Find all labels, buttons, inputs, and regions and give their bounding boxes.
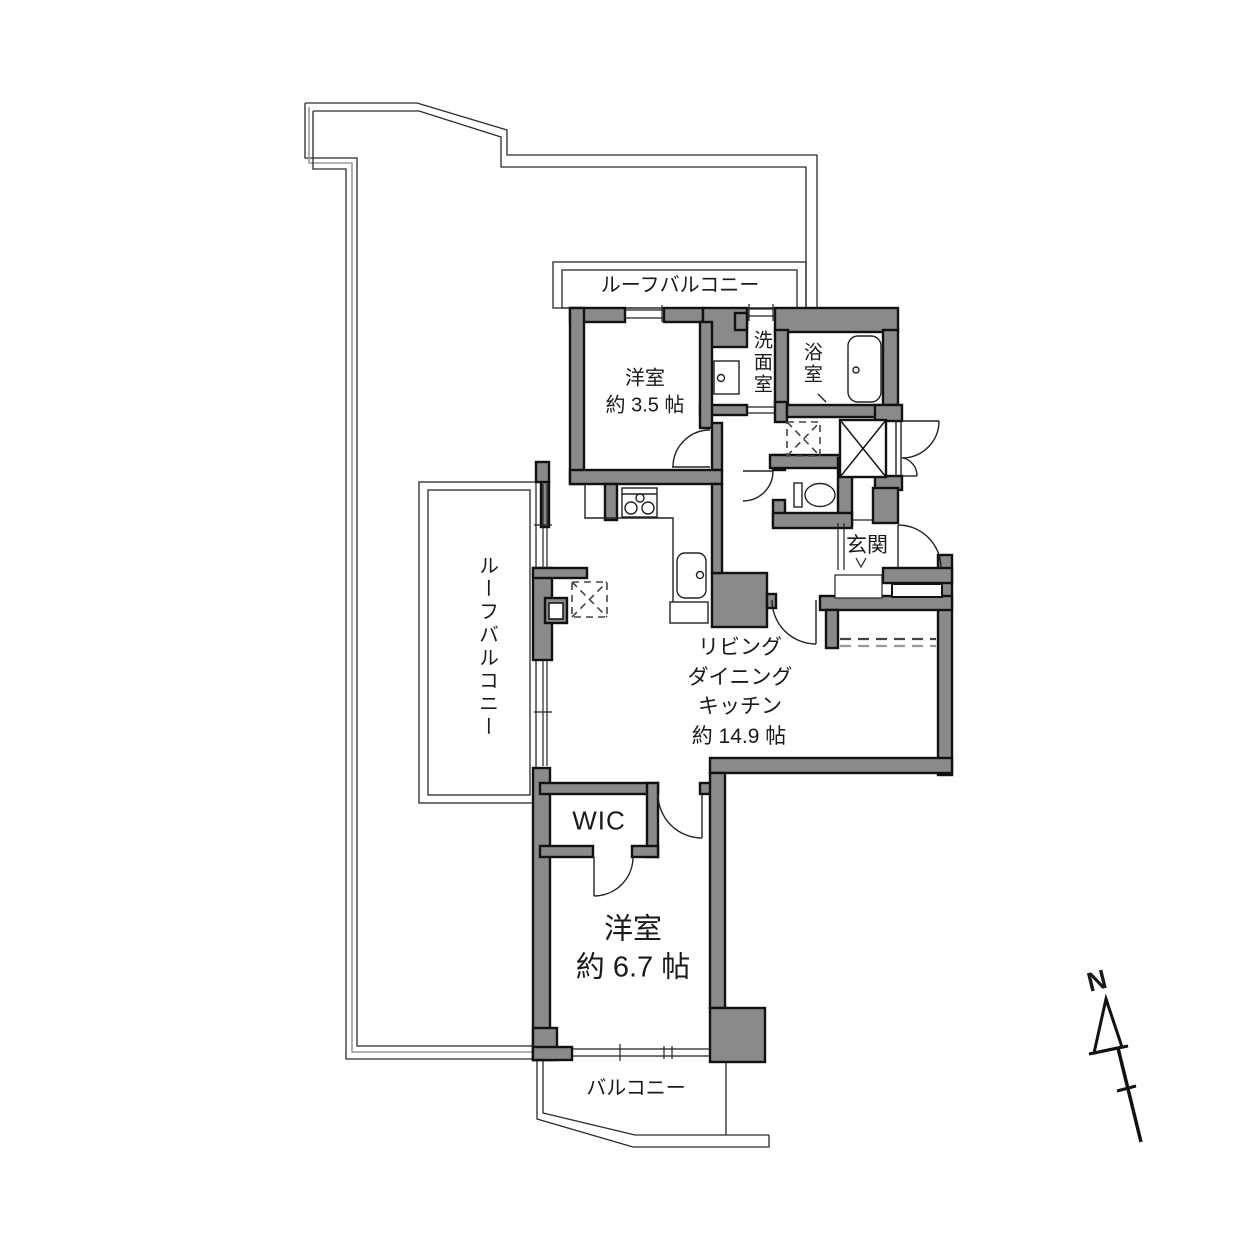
toilet	[794, 483, 835, 507]
ldk-label-line3: キッチン	[698, 693, 782, 721]
bathroom-label: 浴室	[798, 342, 824, 386]
roof-balcony-top-label: ルーフバルコニー	[601, 273, 759, 300]
roof-balcony-left-label: ルーフバルコニー	[473, 555, 500, 739]
floor-plan-drawing	[0, 0, 1252, 1252]
bedroom-small-name: 洋室	[625, 366, 665, 393]
bedroom-main-name: 洋室	[604, 910, 662, 949]
stove	[622, 488, 657, 517]
door-swing	[673, 430, 710, 467]
entrance-label: 玄関	[846, 532, 888, 560]
closet-dashes	[840, 639, 936, 646]
bedroom-small-size: 約 3.5 帖	[606, 393, 685, 420]
washroom-label: 洗面室	[748, 330, 774, 396]
pipe-space	[549, 603, 563, 619]
ldk-label-line2: ダイニング	[688, 664, 793, 692]
floor-plan: ルーフバルコニー ルーフバルコニー バルコニー 洋室 約 3.5 帖 洗面室 浴…	[0, 0, 1252, 1252]
ldk-label-line1: リビング	[698, 634, 782, 662]
vanity-sink	[714, 361, 739, 394]
washer-space	[787, 422, 820, 456]
north-arrow	[1089, 999, 1141, 1142]
bathtub	[848, 336, 881, 402]
storage-closet	[840, 420, 886, 477]
fridge-space	[572, 582, 607, 617]
entrance-step	[835, 575, 882, 598]
ldk-size: 約 14.9 帖	[692, 723, 787, 751]
balcony-label: バルコニー	[586, 1076, 686, 1103]
bedroom-main-size: 約 6.7 帖	[576, 948, 690, 987]
counter-end	[670, 602, 708, 623]
kitchen-sink	[677, 553, 706, 598]
wic-label: WIC	[572, 803, 626, 838]
shelf-slot	[892, 584, 942, 597]
